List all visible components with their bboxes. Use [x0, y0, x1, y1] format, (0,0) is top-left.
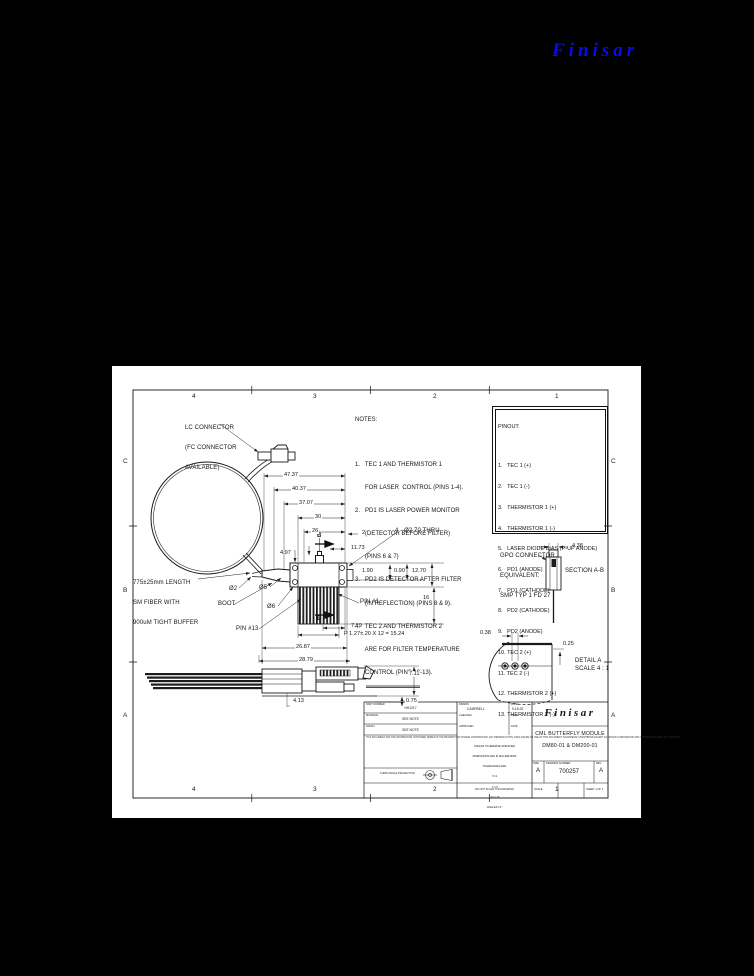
callout-line: LC CONNECTOR [185, 425, 237, 432]
drawing-title-line1: CML BUTTERFLY MODULE [532, 731, 608, 737]
dia5-callout: Ø5 [259, 585, 267, 592]
note-line: FOR LASER CONTROL (PINS 1-4). [355, 485, 463, 493]
drawing-sheet: 4 3 2 1 4 3 2 1 C B A C B A NOTES: 1. TE… [112, 366, 641, 818]
tolerance-block: UNLESS OTHERWISE SPECIFIED DIMENSIONS AR… [458, 738, 531, 816]
zone-col-4-bottom: 4 [192, 786, 196, 793]
dim-47-37: 47.37 [283, 472, 299, 478]
dim-30: 30 [314, 514, 322, 520]
finisar-titleblock-logo: Finisar [532, 707, 608, 719]
detail-a-scale: SCALE 4 : 1 [575, 666, 609, 673]
dim-0-75: 0.75 [405, 698, 418, 704]
projection-label: THIRD ANGLE PROJECTION [380, 772, 415, 775]
fiber-callout: 775±25mm LENGTH SM FIBER WITH 900uM TIGH… [133, 567, 198, 640]
zone-col-2-top: 2 [433, 393, 437, 400]
pin-item: 10. TEC 2 (+) [498, 650, 597, 657]
pinout-title: PINOUT: [498, 424, 597, 431]
field-value: SEE NOTE [364, 728, 457, 732]
pin-item: 4. THERMISTOR 1 (-) [498, 526, 597, 533]
field-value: SEE NOTE [364, 717, 457, 721]
tolerance-line: DIMENSIONS ARE IN MILLIMETERS [458, 755, 531, 758]
zone-col-3-top: 3 [313, 393, 317, 400]
zone-row-c-left: C [123, 458, 128, 465]
dim-11-73: 11.73 [350, 545, 366, 551]
dim-7-19: 7.19 [350, 623, 363, 629]
notes-title: NOTES: [355, 417, 463, 425]
dia6-callout: Ø6 [267, 604, 275, 611]
gpo-callout: GPO CONNECTOR EQUIVALENT: SMP TYP 1 FD 2… [500, 540, 555, 613]
projection-symbol [423, 770, 452, 781]
sign-date-label: DATE [511, 714, 518, 717]
dim-4-38: 4.38 [571, 543, 584, 549]
field-value: HH1217 [364, 706, 457, 710]
pin13-callout: PIN #13 [236, 626, 258, 633]
tolerance-line: X ±1 [458, 775, 531, 778]
dim-26: 26 [311, 528, 319, 534]
boot-callout: BOOT [218, 601, 235, 608]
dim-26-87: 26.87 [295, 644, 311, 650]
sign-label: CHECKED [459, 714, 472, 717]
dim-1-90: 1.90 [361, 568, 374, 574]
dim-28-79: 28.79 [298, 657, 314, 663]
callout-line: 900uM TIGHT BUFFER [133, 620, 198, 627]
dia2-callout: Ø2 [229, 586, 237, 593]
finisar-page-logo: Finisar [552, 40, 638, 62]
sign-date-label: DATE [511, 703, 518, 706]
sign-date: 9-18-02 [512, 707, 523, 711]
dim-4-13: 4.13 [292, 698, 305, 704]
zone-row-c-right: C [611, 458, 616, 465]
dim-4-97: 4.97 [279, 550, 292, 556]
tolerance-line: TOLERANCES ARE: [458, 765, 531, 768]
no-scale-note: DO NOT SCALE THIS DRAWING [457, 788, 532, 791]
zone-col-3-bottom: 3 [313, 786, 317, 793]
note-line: 1. TEC 1 AND THERMISTOR 1 [355, 462, 463, 470]
tolerance-line: ANGLES ±1° [458, 806, 531, 809]
sheet-label: SHEET 1 OF 1 [586, 788, 603, 791]
callout-line: SM FIBER WITH [133, 600, 198, 607]
dim-12-70: 12.70 [411, 568, 427, 574]
rev-value: A [599, 768, 603, 774]
dim-40-37: 40.37 [291, 486, 307, 492]
page: { "page_logo": { "text": "Finisar", "col… [0, 0, 754, 976]
zone-col-4-top: 4 [192, 393, 196, 400]
zone-row-b-right: B [611, 587, 615, 594]
detail-a-label: DETAIL A [575, 658, 601, 665]
sign-label: DRAWN [459, 703, 469, 706]
holes-callout: 4 - Ø2.70 THRU [395, 528, 440, 535]
dwg-no-value: 700257 [544, 769, 594, 775]
note-line: 3. PD2 IS DETECTOR AFTER FILTER [355, 577, 463, 585]
dim-pin-pitch: P 1.27±.20 X 12 = 15.24 [343, 631, 405, 637]
pin-item: 9. PD2 (ANODE) [498, 629, 597, 636]
note-line: ARE FOR FILTER TEMPERATURE [355, 647, 463, 655]
dim-2: 2 [361, 530, 366, 536]
dim-7-11: 7.11 [408, 671, 420, 677]
zone-col-1-bottom: 1 [555, 786, 559, 793]
pin-item: 1. TEC 1 (+) [498, 463, 597, 470]
proprietary-note: THIS DOCUMENT AND THE INFORMATION CONTAI… [366, 737, 454, 740]
callout-line: AVAILABLE) [185, 465, 237, 472]
tolerance-line: UNLESS OTHERWISE SPECIFIED [458, 745, 531, 748]
pin1-callout: PIN #1 [360, 599, 379, 606]
tolerance-line: .XX ±.25 [458, 796, 531, 799]
dim-0-38: 0.38 [479, 630, 492, 636]
zone-col-1-top: 1 [555, 393, 559, 400]
size-value: A [536, 768, 540, 774]
pin-item: 12. THERMISTOR 2 (+) [498, 691, 597, 698]
callout-line: (FC CONNECTOR [185, 445, 237, 452]
notes-block: NOTES: 1. TEC 1 AND THERMISTOR 1 FOR LAS… [355, 402, 463, 693]
note-line: 2. PD1 IS LASER POWER MONITOR [355, 508, 463, 516]
dim-0-90: 0.90 [393, 568, 406, 574]
pinout-box: PINOUT: 1. TEC 1 (+) 2. TEC 1 (-) 3. THE… [492, 406, 608, 534]
lc-connector [258, 445, 295, 462]
drawing-title-line2: DM80-01 & DM200-01 [532, 743, 608, 749]
callout-line: 775±25mm LENGTH [133, 580, 198, 587]
pin-item: 3. THERMISTOR 1 (+) [498, 505, 597, 512]
size-label: SIZE [533, 762, 539, 765]
note-line: (PINS 6 & 7) [355, 554, 463, 562]
zone-col-2-bottom: 2 [433, 786, 437, 793]
callout-line: SMP TYP 1 FD 27 [500, 593, 555, 600]
callout-line: GPO CONNECTOR [500, 553, 555, 560]
section-b-label-bottom: B [317, 616, 321, 623]
rev-label: REV [596, 762, 601, 765]
pin-item: 2. TEC 1 (-) [498, 484, 597, 491]
sign-label: APPROVED [459, 725, 473, 728]
zone-row-b-left: B [123, 587, 127, 594]
sign-date-label: DATE [511, 725, 518, 728]
dwg-no-label: DRAWING NUMBER [546, 762, 570, 765]
callout-line: EQUIVALENT: [500, 573, 555, 580]
sign-value: CAMPBELL [467, 707, 485, 711]
zone-row-a-left: A [123, 712, 127, 719]
dim-16: 16 [422, 595, 430, 601]
dim-0-25: 0.25 [562, 641, 575, 647]
section-ab-label: SECTION A-B [565, 568, 604, 575]
scale-label: SCALE [534, 788, 543, 791]
zone-row-a-right: A [611, 712, 615, 719]
lc-connector-callout: LC CONNECTOR (FC CONNECTOR AVAILABLE) [185, 412, 237, 485]
dim-37-07: 37.07 [298, 500, 314, 506]
